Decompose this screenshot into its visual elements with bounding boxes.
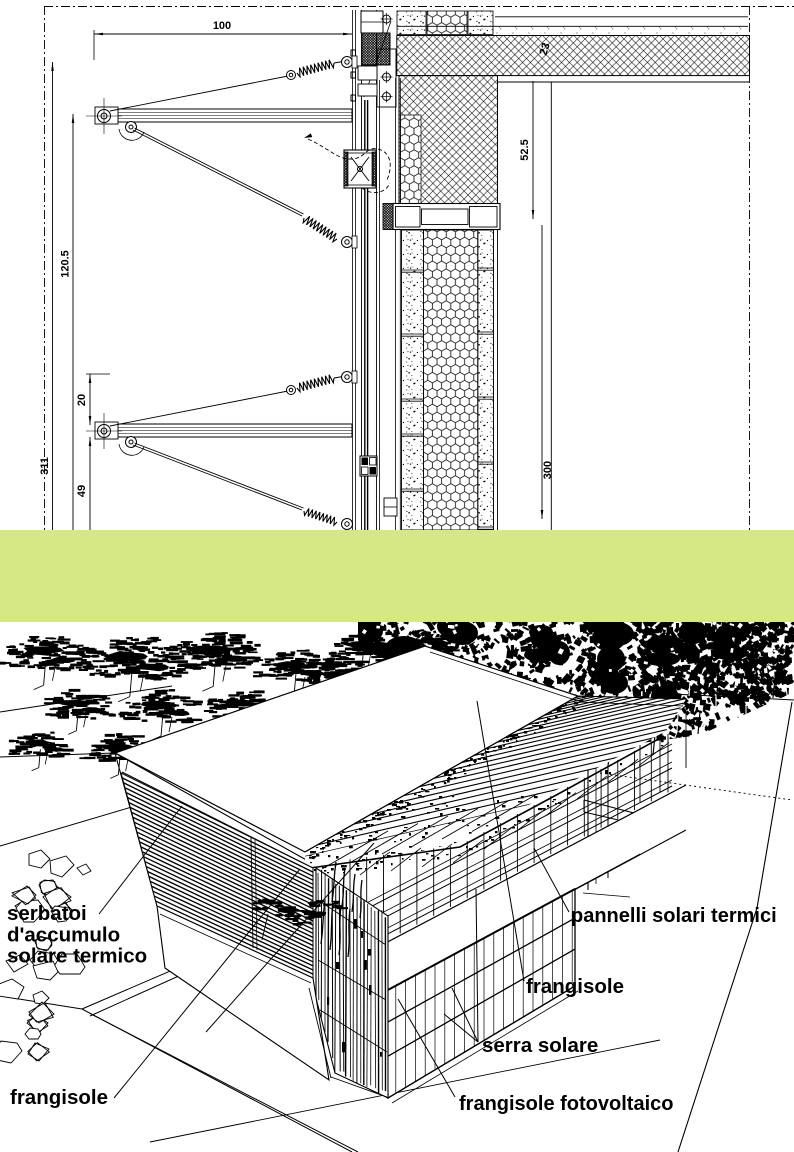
svg-text:300: 300 xyxy=(542,461,554,479)
svg-text:pannelli solari termici: pannelli solari termici xyxy=(571,905,777,927)
svg-text:49: 49 xyxy=(76,485,88,497)
svg-text:serra solare: serra solare xyxy=(482,1034,598,1057)
svg-text:frangisole: frangisole xyxy=(526,975,624,998)
svg-text:120.5: 120.5 xyxy=(60,250,72,278)
svg-text:52.5: 52.5 xyxy=(519,139,531,160)
svg-text:100: 100 xyxy=(213,20,231,32)
svg-text:d'accumulo: d'accumulo xyxy=(7,924,120,947)
svg-text:frangisole: frangisole xyxy=(10,1086,108,1109)
svg-text:solare termico: solare termico xyxy=(7,945,147,968)
svg-text:311: 311 xyxy=(39,457,51,475)
svg-text:frangisole fotovoltaico: frangisole fotovoltaico xyxy=(459,1093,673,1115)
svg-text:serbatoi: serbatoi xyxy=(7,902,87,925)
svg-text:20: 20 xyxy=(76,394,88,406)
